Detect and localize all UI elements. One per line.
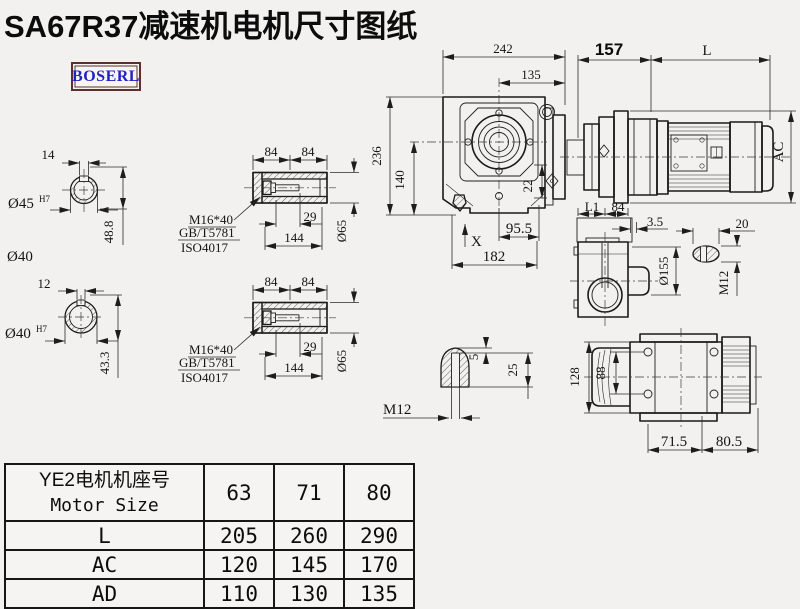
dim-84-b2: 84 (302, 274, 316, 289)
label-od-40: Ø40 (7, 249, 33, 265)
table-cell: 120 (204, 550, 274, 579)
dim-88: 88 (593, 367, 608, 380)
table-row-L: L 205 260 290 (5, 521, 414, 550)
label-std-gb: GB/T5781 (179, 225, 235, 240)
dim-L1: L1 (585, 199, 599, 214)
table-cell: 170 (344, 550, 414, 579)
dim-22: 22 (520, 180, 535, 193)
dim-236: 236 (369, 146, 384, 166)
table-header-row: YE2电机机座号 Motor Size 63 71 80 (5, 464, 414, 521)
dim-key-14: 14 (42, 147, 56, 162)
table-cell: 260 (274, 521, 344, 550)
dim-od-65-2: Ø65 (334, 350, 349, 372)
dim-25: 25 (505, 364, 520, 377)
label-M12-detail: M12 (383, 402, 411, 418)
dim-depth-48-8: 48.8 (101, 221, 116, 244)
table-header-en: Motor Size (6, 494, 203, 518)
table-row-AC: AC 120 145 170 (5, 550, 414, 579)
table-header-cn: YE2电机机座号 (6, 468, 203, 494)
dim-155: Ø155 (656, 257, 671, 286)
dim-bore-40-fit: H7 (36, 324, 47, 334)
view-gearbox-top: L1 84 3.5 Ø155 20 M12 (570, 199, 755, 327)
dim-135: 135 (521, 67, 541, 82)
dim-84-a: 84 (265, 144, 279, 159)
dim-29: 29 (304, 209, 317, 224)
dim-bore-45: Ø45 (8, 196, 34, 212)
table-cell: 145 (274, 550, 344, 579)
dim-80-5: 80.5 (716, 434, 742, 450)
dim-bore-40: Ø40 (5, 326, 31, 342)
label-std-gb-2: GB/T5781 (179, 355, 235, 370)
view-shaft-solid-section: 14 Ø45 H7 48.8 Ø40 (7, 147, 127, 265)
dim-71-5: 71.5 (661, 434, 687, 450)
view-bushing-bottom: 84 84 29 144 Ø65 M16*40 GB/T5781 ISO4017 (178, 274, 359, 385)
row-label-L: L (5, 521, 204, 550)
view-shaft-hollow-section: 12 Ø40 H7 43.3 (5, 276, 122, 378)
dim-95-5: 95.5 (506, 221, 532, 237)
label-std-iso-2: ISO4017 (181, 370, 228, 385)
dim-AC: AC (771, 142, 787, 163)
dim-29-2: 29 (304, 339, 317, 354)
dim-84-top: 84 (612, 199, 626, 214)
dim-L: L (702, 43, 711, 59)
label-std-iso: ISO4017 (181, 240, 228, 255)
view-motor-bottom: 128 88 71.5 80.5 (567, 328, 762, 453)
dim-3-5: 3.5 (647, 214, 663, 229)
row-label-AC: AC (5, 550, 204, 579)
view-key-detail: 5 25 M12 (383, 338, 533, 419)
row-label-AD: AD (5, 579, 204, 608)
view-bushing-top: 84 84 29 144 Ø65 M16*40 GB/T5781 ISO4017 (178, 144, 359, 255)
dim-bore-45-fit: H7 (39, 194, 50, 204)
table-cell: 290 (344, 521, 414, 550)
table-size-80: 80 (344, 464, 414, 521)
dim-84-a2: 84 (265, 274, 279, 289)
mark-x: X (471, 234, 482, 250)
dim-242: 242 (493, 41, 513, 56)
dim-20: 20 (736, 216, 749, 231)
table-size-71: 71 (274, 464, 344, 521)
drawing-page: { "title": "SA67R37减速机电机尺寸图纸", "logo": "… (0, 0, 800, 609)
dim-od-65: Ø65 (334, 220, 349, 242)
dim-144: 144 (284, 230, 304, 245)
view-main-assembly: 242 135 157 L 236 140 22 95.5 182 X AC (369, 40, 796, 269)
dim-140: 140 (392, 170, 407, 190)
dim-key-12: 12 (38, 276, 51, 291)
table-size-63: 63 (204, 464, 274, 521)
motor-size-table: YE2电机机座号 Motor Size 63 71 80 L 205 260 2… (4, 463, 415, 609)
dim-144-2: 144 (284, 360, 304, 375)
dim-128: 128 (567, 367, 582, 387)
dim-84-b: 84 (302, 144, 316, 159)
dim-M12-top: M12 (716, 271, 731, 296)
table-cell: 130 (274, 579, 344, 608)
table-cell: 110 (204, 579, 274, 608)
dim-depth-43-3: 43.3 (97, 352, 112, 375)
dim-157: 157 (595, 40, 623, 59)
table-header-cell: YE2电机机座号 Motor Size (5, 464, 204, 521)
dim-5: 5 (466, 354, 481, 361)
table-cell: 135 (344, 579, 414, 608)
table-row-AD: AD 110 130 135 (5, 579, 414, 608)
table-cell: 205 (204, 521, 274, 550)
dim-182: 182 (483, 249, 506, 265)
